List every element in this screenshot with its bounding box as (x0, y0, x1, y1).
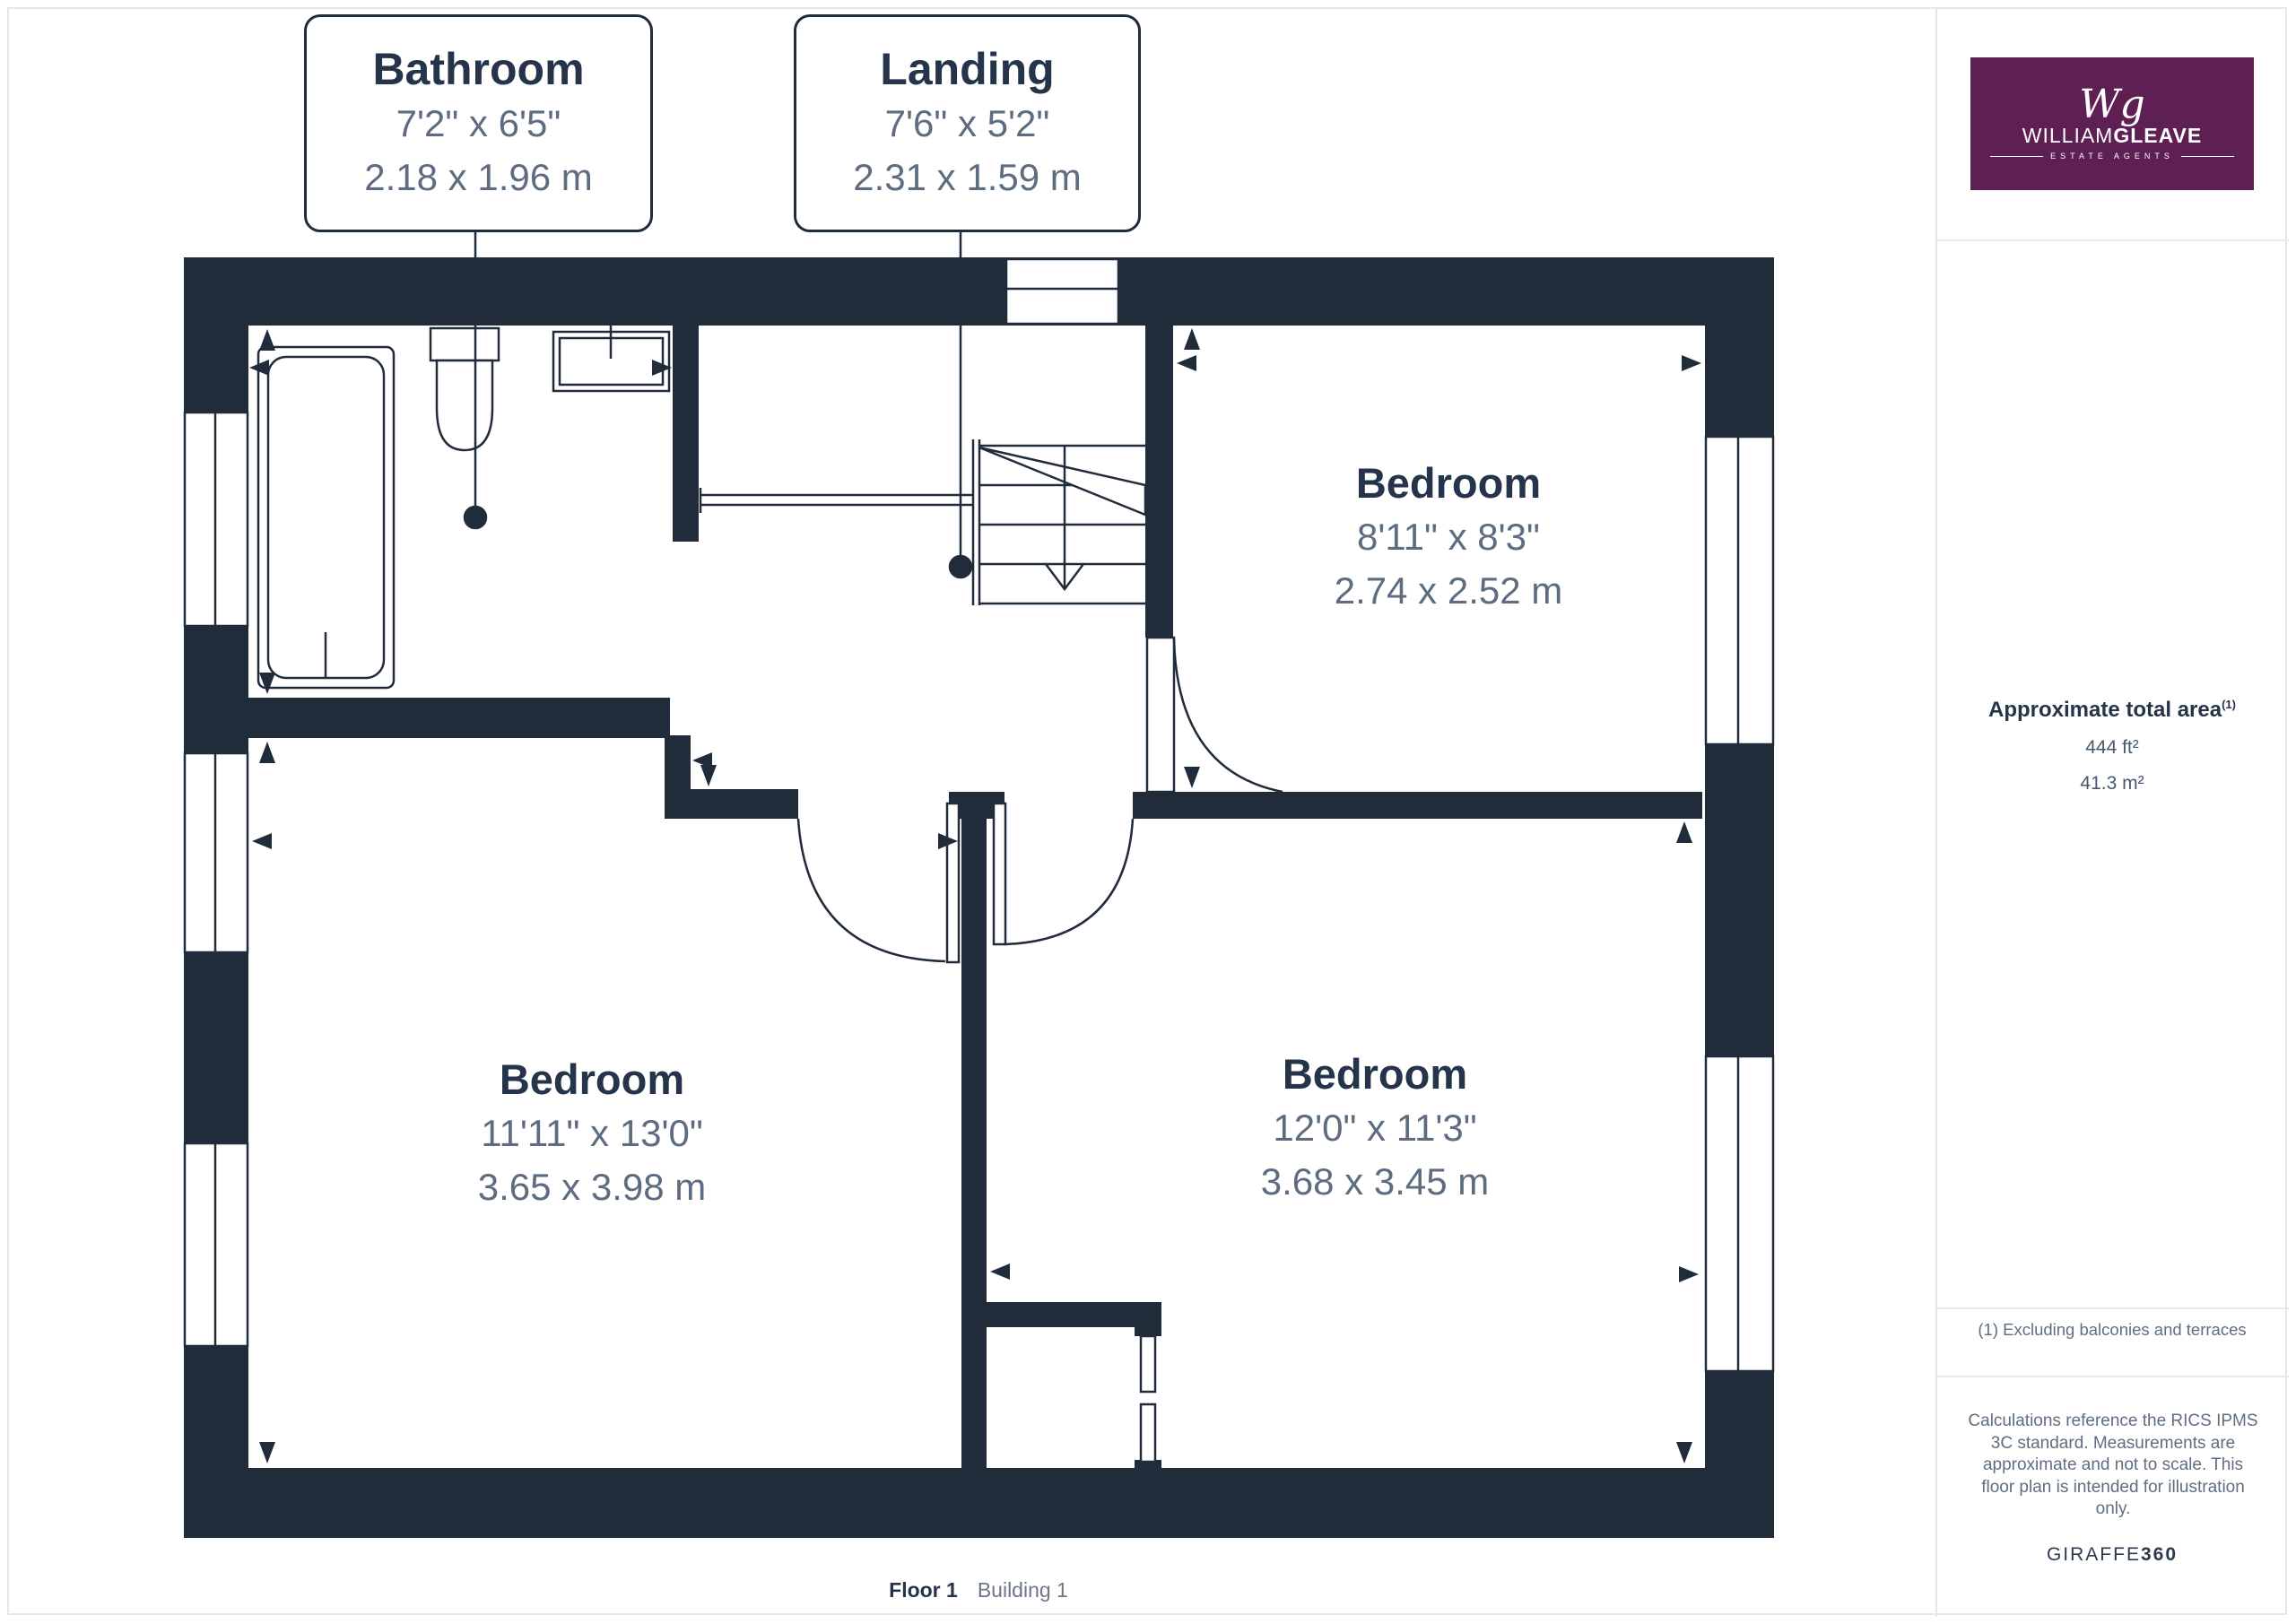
measure-arrow-right-icon (1682, 355, 1701, 371)
floor-plan (0, 0, 2296, 1624)
callout-imperial-dimensions: 7'2" x 6'5" (396, 97, 561, 151)
disclaimer-line: only. (1952, 1498, 2274, 1521)
callout-metric-dimensions: 2.31 x 1.59 m (853, 151, 1081, 204)
room-imperial-dimensions: 11'11" x 13'0" (478, 1107, 706, 1160)
wall-closet-stub (987, 1302, 1161, 1327)
footnote-text: (1) Excluding balconies and terraces (1937, 1320, 2287, 1340)
door-leaf-bedroom-bottomleft (947, 803, 959, 962)
sidebar-section-divider (1936, 1376, 2289, 1377)
building-label: Building 1 (978, 1578, 1068, 1602)
window-left-bedroom-upper (185, 753, 248, 952)
measure-arrow-down-icon (700, 765, 717, 786)
wall-bottom (184, 1468, 1774, 1538)
stair-break-wedge (979, 447, 1145, 515)
door-leaf-bedroom-topright (1147, 638, 1174, 792)
door-arc-bedroom-bottomleft (798, 819, 945, 961)
measure-arrow-left-icon (252, 833, 272, 849)
wall-bathroom-bottom (248, 698, 670, 738)
door-arc-bedroom-bottomright (1005, 819, 1133, 944)
room-name: Bedroom (1335, 456, 1562, 510)
window-right-bedroom-bottom (1706, 1056, 1773, 1371)
callout-imperial-dimensions: 7'6" x 5'2" (885, 97, 1050, 151)
room-metric-dimensions: 3.68 x 3.45 m (1261, 1155, 1489, 1209)
sidebar-section-divider (1936, 1307, 2289, 1309)
leader-dot-landing (950, 556, 971, 578)
measure-arrow-up-icon (1184, 328, 1200, 350)
logo-name: WILLIAMGLEAVE (2022, 124, 2202, 148)
area-metric-value: 41.3 m² (1937, 773, 2287, 795)
disclaimer-line: floor plan is intended for illustration (1952, 1477, 2274, 1499)
callout-room-name: Landing (880, 42, 1054, 97)
logo-tagline: ESTATE AGENTS (1990, 152, 2234, 161)
brand-name: GIRAFFE (2047, 1544, 2141, 1565)
area-heading: Approximate total area(1) (1937, 698, 2287, 723)
logo-name-gleave: GLEAVE (2113, 124, 2202, 147)
logo-name-william: WILLIAM (2022, 124, 2114, 147)
wall-corridor-stub (665, 789, 798, 819)
callout-bathroom: Bathroom 7'2" x 6'5" 2.18 x 1.96 m (304, 14, 653, 232)
room-label-bedroom-bottomright: Bedroom 12'0" x 11'3" 3.68 x 3.45 m (1261, 1046, 1489, 1208)
callout-room-name: Bathroom (372, 42, 584, 97)
wall-top (184, 257, 1774, 326)
room-label-bedroom-bottomleft: Bedroom 11'11" x 13'0" 3.65 x 3.98 m (478, 1052, 706, 1213)
measure-arrow-down-icon (259, 1442, 275, 1463)
logo-monogram-icon: Wg (2079, 87, 2144, 123)
jamb-closet-top (1135, 1325, 1161, 1336)
callout-landing: Landing 7'6" x 5'2" 2.31 x 1.59 m (794, 14, 1141, 232)
giraffe360-brand: GIRAFFE360 (1937, 1544, 2287, 1566)
measure-arrow-down-icon (1676, 1442, 1692, 1463)
room-name: Bedroom (478, 1052, 706, 1107)
measure-arrow-right-icon (1679, 1266, 1699, 1282)
area-heading-footnote-marker: (1) (2222, 698, 2236, 711)
floor-label: Floor 1 (889, 1578, 958, 1602)
window-left-bathroom (185, 413, 248, 626)
bathtub-inner (268, 357, 384, 678)
room-name: Bedroom (1261, 1046, 1489, 1101)
wall-landing-bedroom (1145, 326, 1173, 638)
disclaimer-line: approximate and not to scale. This (1952, 1455, 2274, 1477)
sidebar-section-divider (1936, 239, 2289, 241)
brand-suffix: 360 (2141, 1544, 2178, 1565)
wall-bathroom-landing (673, 326, 699, 542)
disclaimer-line: Calculations reference the RICS IPMS (1952, 1411, 2274, 1433)
area-imperial-value: 444 ft² (1937, 737, 2287, 759)
window-closet-inner (1141, 1336, 1155, 1462)
logo-tagline-text: ESTATE AGENTS (2043, 152, 2181, 161)
leader-dot-bathroom (465, 507, 486, 528)
approximate-area-section: Approximate total area(1) 444 ft² 41.3 m… (1937, 698, 2287, 795)
measure-arrow-left-icon (990, 1264, 1010, 1280)
window-right-bedroom-top (1706, 437, 1773, 744)
measure-arrow-up-icon (1676, 821, 1692, 843)
estate-agent-logo: Wg WILLIAMGLEAVE ESTATE AGENTS (1970, 57, 2254, 190)
window-top-landing (1006, 259, 1118, 324)
measure-arrow-down-icon (1184, 767, 1200, 788)
area-heading-text: Approximate total area (1988, 698, 2222, 722)
toilet-cistern (430, 328, 499, 360)
callout-metric-dimensions: 2.18 x 1.96 m (364, 151, 592, 204)
room-metric-dimensions: 2.74 x 2.52 m (1335, 564, 1562, 618)
room-imperial-dimensions: 8'11" x 8'3" (1335, 510, 1562, 564)
wall-bedroom-top (1133, 792, 1702, 819)
floor-caption: Floor 1Building 1 (889, 1578, 1068, 1602)
staircase (700, 439, 1145, 605)
door-leaf-bedroom-bottomright (994, 803, 1005, 944)
window-left-bedroom-lower (185, 1143, 248, 1346)
measure-arrow-left-icon (1177, 355, 1196, 371)
wall-center-divider (961, 792, 987, 1468)
room-imperial-dimensions: 12'0" x 11'3" (1261, 1101, 1489, 1155)
measure-arrow-up-icon (259, 329, 275, 351)
room-metric-dimensions: 3.65 x 3.98 m (478, 1160, 706, 1214)
measure-arrow-up-icon (259, 742, 275, 763)
disclaimer-line: 3C standard. Measurements are (1952, 1433, 2274, 1455)
bathroom-fixtures (258, 326, 669, 688)
disclaimer-text: Calculations reference the RICS IPMS 3C … (1952, 1411, 2274, 1521)
room-label-bedroom-topright: Bedroom 8'11" x 8'3" 2.74 x 2.52 m (1335, 456, 1562, 617)
toilet-bowl (437, 360, 492, 450)
